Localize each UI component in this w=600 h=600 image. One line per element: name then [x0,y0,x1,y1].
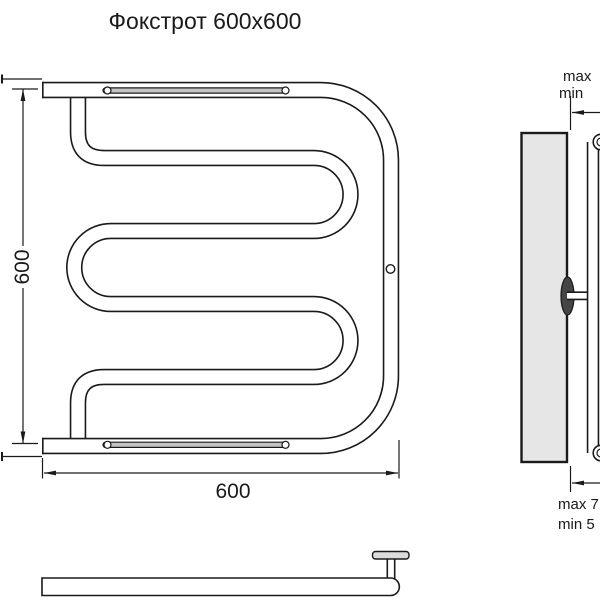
drawing-title: Фокстрот 600x600 [109,8,302,34]
bottom-view [42,552,409,596]
side-view: max min max 7 min 5 [522,68,600,533]
screw-hole-icon [104,441,111,448]
top-clearance-min-label: min [559,85,583,102]
screw-hole-icon [104,87,111,94]
arrow-left-icon [572,481,584,486]
serpentine-pipe [74,95,350,441]
top-clearance-dimension: max min [559,68,600,130]
air-vent-icon [386,265,395,274]
arrow-left-icon [572,110,584,115]
bottom-tube [42,578,399,596]
arrow-down-icon [21,432,26,444]
screw-hole-icon [282,87,289,94]
bottom-clearance-dimension: max 7 min 5 [558,466,600,533]
width-dim-label: 600 [215,480,250,503]
arrow-up-icon [21,89,26,101]
wall [522,133,568,462]
mounting-slot-top [103,87,289,94]
drawing-svg: Фокстрот 600x600 [0,0,600,600]
bottom-clearance-min-label: min 5 [558,516,595,533]
height-dimension: 600 [2,75,42,462]
frame-pipe [42,82,391,455]
arrow-right-icon [386,471,398,476]
mounting-slot-bottom [103,441,289,448]
screw-hole-icon [282,441,289,448]
height-dim-label: 600 [11,249,34,284]
technical-drawing: Фокстрот 600x600 [0,0,600,600]
top-clearance-max-label: max [563,68,592,85]
bottom-clearance-max-label: max 7 [558,496,599,513]
front-view: 600 600 [2,75,399,504]
bracket-flange [373,552,410,560]
arrow-left-icon [44,471,56,476]
